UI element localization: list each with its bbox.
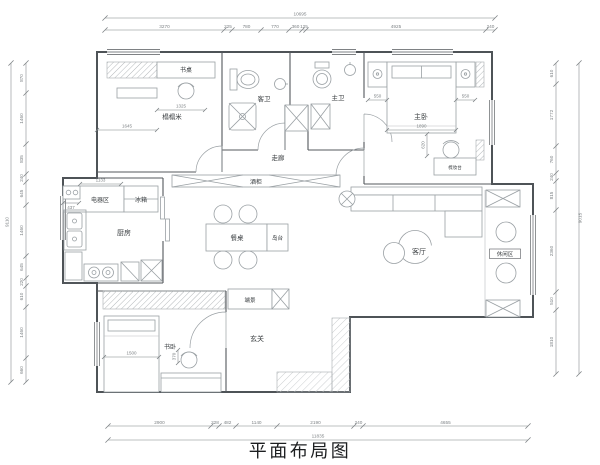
- sink-bowl: [67, 231, 82, 247]
- dim-label: 610: [549, 69, 554, 77]
- window-masterbath-top: [332, 49, 356, 55]
- dining-chair: [239, 251, 257, 269]
- dim-label: 240: [19, 174, 24, 182]
- dim-label: 1810: [549, 336, 554, 347]
- dim-label: 660: [19, 366, 24, 374]
- dim-label: 815: [549, 191, 554, 199]
- sink-icon: [275, 79, 286, 90]
- room-label-tatami: 榻榻米: [162, 112, 182, 121]
- bedroom-column-hatch: [476, 62, 484, 87]
- desk-chair: [178, 83, 194, 99]
- dim-label: 835: [19, 155, 24, 163]
- dim-label: 1140: [251, 420, 261, 425]
- window-bedroom-right: [489, 100, 495, 145]
- dining-chair: [214, 251, 232, 269]
- dim-label: 482: [224, 420, 232, 425]
- dim-label: 1500: [126, 351, 137, 356]
- dim-label: 240: [549, 173, 554, 181]
- dim-label: 370: [172, 352, 177, 360]
- desk: [161, 373, 221, 392]
- leisure-chair: [496, 263, 516, 283]
- study-bedroom-door-arc: [190, 312, 226, 348]
- dim-label: 510: [549, 297, 554, 305]
- dim-label: 220: [19, 278, 24, 286]
- room-label-master-bedroom: 主卧: [414, 112, 428, 121]
- study-bedroom-furniture: [104, 316, 221, 392]
- dim-label: 240: [355, 420, 363, 425]
- desk-chair: [181, 352, 197, 368]
- room-label-island: 岛台: [272, 234, 284, 242]
- dim-label: 9015: [578, 212, 583, 223]
- sofa-back: [351, 187, 482, 195]
- dim-label: 228: [211, 420, 219, 425]
- room-label-dining-table: 餐桌: [231, 233, 245, 242]
- toilet-tank-icon: [315, 62, 329, 68]
- room-label-master-bath: 主卫: [332, 93, 346, 102]
- dim-label: 2900: [154, 420, 165, 425]
- study-wardrobe-hatch: [103, 291, 225, 309]
- dressing-stool: [443, 142, 459, 158]
- room-label-corridor: 走廊: [272, 153, 286, 162]
- master-bedroom-door-arc: [336, 148, 364, 176]
- dim-label: 760: [549, 155, 554, 163]
- room-label-leisure-area: 休闲区: [497, 250, 514, 258]
- dim-label: 1645: [122, 124, 133, 129]
- dim-label: 1890: [416, 124, 427, 129]
- room-label-fridge: 冰箱: [135, 196, 147, 204]
- dining-chair: [239, 205, 257, 223]
- sink-bowl: [67, 213, 82, 229]
- page-title: 平面布局图: [249, 441, 352, 461]
- floor-plan-canvas: 平面布局图 3270225780770360125492524010695870…: [0, 0, 600, 465]
- room-label-wine-cabinet: 酒柜: [250, 178, 262, 186]
- dim-label: 10695: [293, 12, 306, 17]
- dim-label: 770: [271, 24, 279, 29]
- dim-label: 9110: [5, 217, 10, 227]
- window-study-left: [94, 322, 100, 366]
- window-leisure-right: [530, 215, 536, 295]
- room-label-guest-bath: 客卫: [258, 94, 272, 103]
- toilet-icon: [313, 70, 331, 88]
- dim-label: 360: [292, 24, 300, 29]
- dim-label: 870: [19, 74, 24, 82]
- room-label-study-bedroom: 书卧: [164, 343, 176, 351]
- laundry-niche: [285, 105, 308, 131]
- dim-label: 550: [462, 94, 470, 99]
- dim-label: 645: [19, 189, 24, 197]
- tatami-door-arc: [196, 146, 222, 172]
- toilet-icon: [237, 71, 259, 89]
- floor-plan-page: 平面布局图 3270225780770360125492524010695870…: [0, 0, 600, 465]
- tall-unit: [65, 252, 82, 280]
- dim-label: 2190: [310, 420, 321, 425]
- room-label-dressing-table: 梳妆台: [448, 164, 462, 171]
- tatami-closet-hatch: [107, 62, 157, 78]
- dim-label: 1772: [549, 109, 554, 120]
- dim-label: 437: [67, 205, 75, 210]
- entry-walkway-hatch-vertical: [332, 318, 350, 392]
- dim-label: 1460: [19, 113, 24, 124]
- room-label-living-room: 客厅: [412, 247, 426, 256]
- dim-label: 125: [300, 24, 308, 29]
- toilet-tank-icon: [230, 69, 237, 90]
- dim-label: 1325: [176, 104, 187, 109]
- dim-label: 620: [421, 141, 426, 149]
- room-label-appliance-area: 电器区: [91, 196, 109, 204]
- dim-label: 1133: [96, 178, 106, 183]
- dim-label: 780: [243, 24, 251, 29]
- dim-label: 11835: [312, 434, 325, 439]
- dim-label: 645: [19, 263, 24, 271]
- bedroom-column-hatch: [476, 140, 484, 160]
- room-label-kitchen: 厨房: [117, 228, 131, 237]
- room-label-study-desk: 书桌: [180, 66, 192, 74]
- sofa-chaise: [445, 211, 482, 237]
- dim-label: 550: [374, 94, 382, 99]
- dim-label: 225: [224, 24, 232, 29]
- dim-label: 2360: [549, 245, 554, 256]
- guest-bath-door-arc: [258, 123, 285, 150]
- window-tatami-top: [107, 49, 160, 55]
- shelf: [117, 88, 157, 98]
- dim-label: 3270: [159, 24, 170, 29]
- dim-label: 610: [19, 292, 24, 300]
- room-label-entryway: 玄关: [250, 334, 264, 343]
- leisure-chair: [496, 222, 516, 242]
- nightstand: [456, 62, 475, 87]
- sliding-door-panel: [161, 197, 165, 219]
- coffee-table-small: [384, 243, 405, 264]
- dim-label: 1460: [19, 327, 24, 338]
- nightstand: [368, 62, 387, 87]
- dim-label: 4655: [440, 420, 451, 425]
- window-bedroom-top: [392, 49, 453, 55]
- sink-icon: [345, 65, 356, 76]
- dim-label: 1460: [19, 225, 24, 236]
- cooktop: [84, 264, 118, 281]
- room-label-end-view: 端景: [244, 296, 256, 304]
- entry-walkway-hatch-horizontal: [277, 372, 332, 392]
- dim-label: 240: [487, 24, 495, 29]
- sofa-seat: [351, 195, 482, 211]
- dim-label: 4925: [391, 24, 402, 29]
- sliding-door-panel: [166, 219, 170, 241]
- entry-furniture: [228, 289, 289, 309]
- dining-chair: [214, 205, 232, 223]
